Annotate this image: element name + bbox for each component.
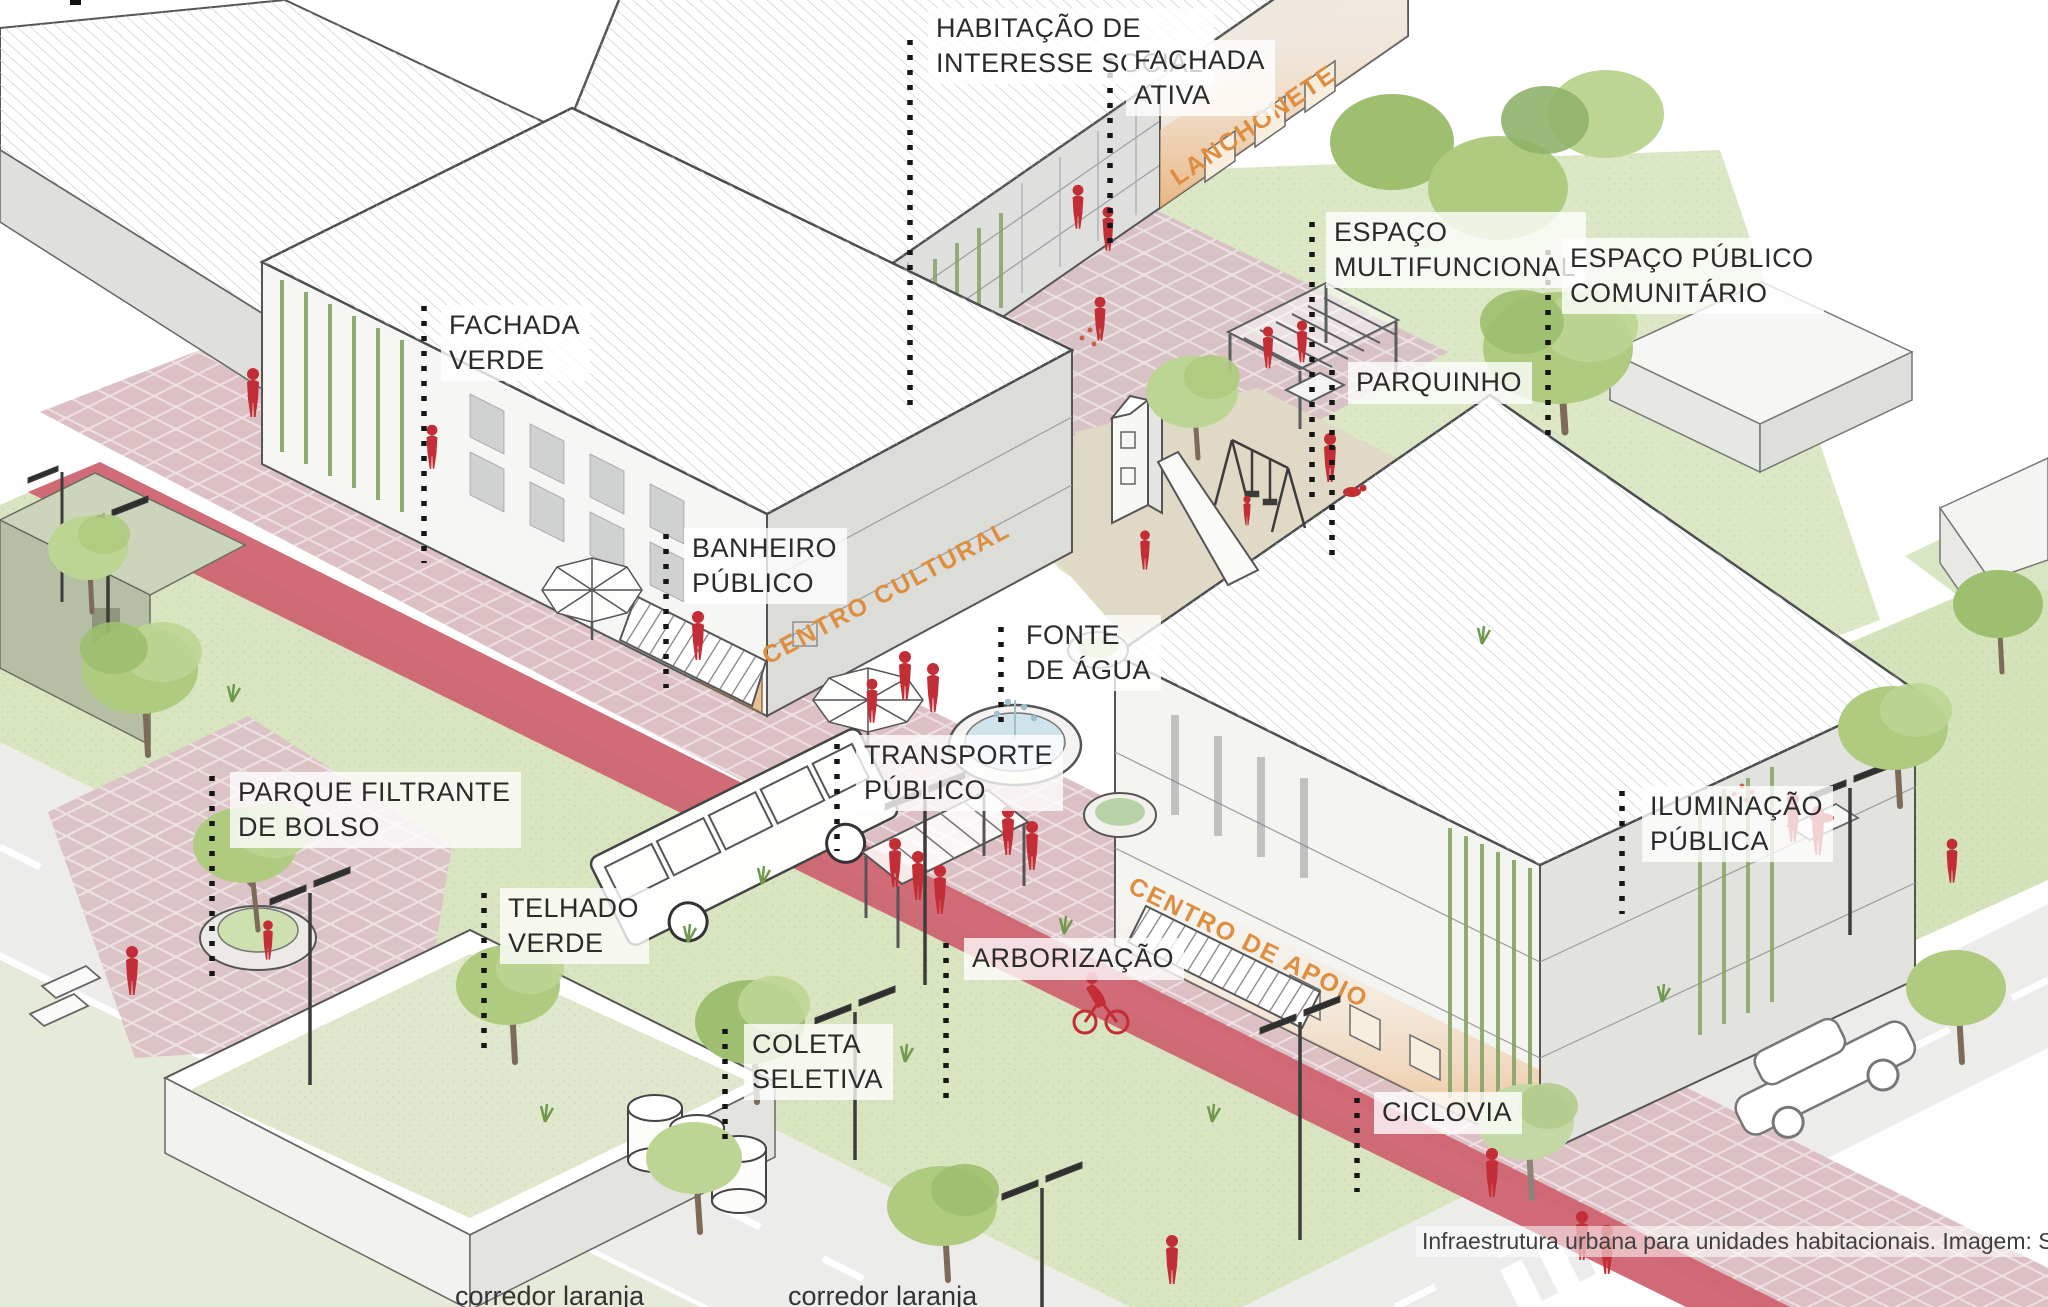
- label-espaco-publico-comunitario: ESPAÇO PÚBLICO COMUNITÁRIO: [1562, 238, 1824, 314]
- basin-small: [1084, 793, 1156, 837]
- label-banheiro-publico: BANHEIRO PÚBLICO: [684, 528, 847, 604]
- label-espaco-multifuncional: ESPAÇO MULTIFUNCIONAL: [1326, 212, 1586, 288]
- label-fachada-verde: FACHADA VERDE: [441, 305, 590, 381]
- label-parque-filtrante: PARQUE FILTRANTE DE BOLSO: [230, 772, 521, 848]
- footer-corredor-laranja-1: corredor laranja: [455, 1281, 644, 1307]
- cropped-edge-mark: [70, 0, 81, 5]
- footer-corredor-laranja-2: corredor laranja: [788, 1281, 977, 1307]
- label-telhado-verde: TELHADO VERDE: [500, 888, 649, 964]
- label-fachada-ativa: FACHADA ATIVA: [1126, 40, 1275, 116]
- image-caption: Infraestrutura urbana para unidades habi…: [1416, 1226, 2048, 1257]
- label-transporte-publico: TRANSPORTE PÚBLICO: [856, 735, 1063, 811]
- illustration-canvas: LANCHONETE CENTRO CULTURAL: [0, 0, 2048, 1307]
- label-coleta-seletiva: COLETA SELETIVA: [744, 1024, 893, 1100]
- label-parquinho: PARQUINHO: [1348, 362, 1532, 404]
- label-arborizacao: ARBORIZAÇÃO: [964, 938, 1184, 980]
- label-iluminacao-publica: ILUMINAÇÃO PÚBLICA: [1642, 786, 1833, 862]
- label-ciclovia: CICLOVIA: [1374, 1092, 1522, 1134]
- label-fonte-de-agua: FONTE DE ÁGUA: [1018, 615, 1161, 691]
